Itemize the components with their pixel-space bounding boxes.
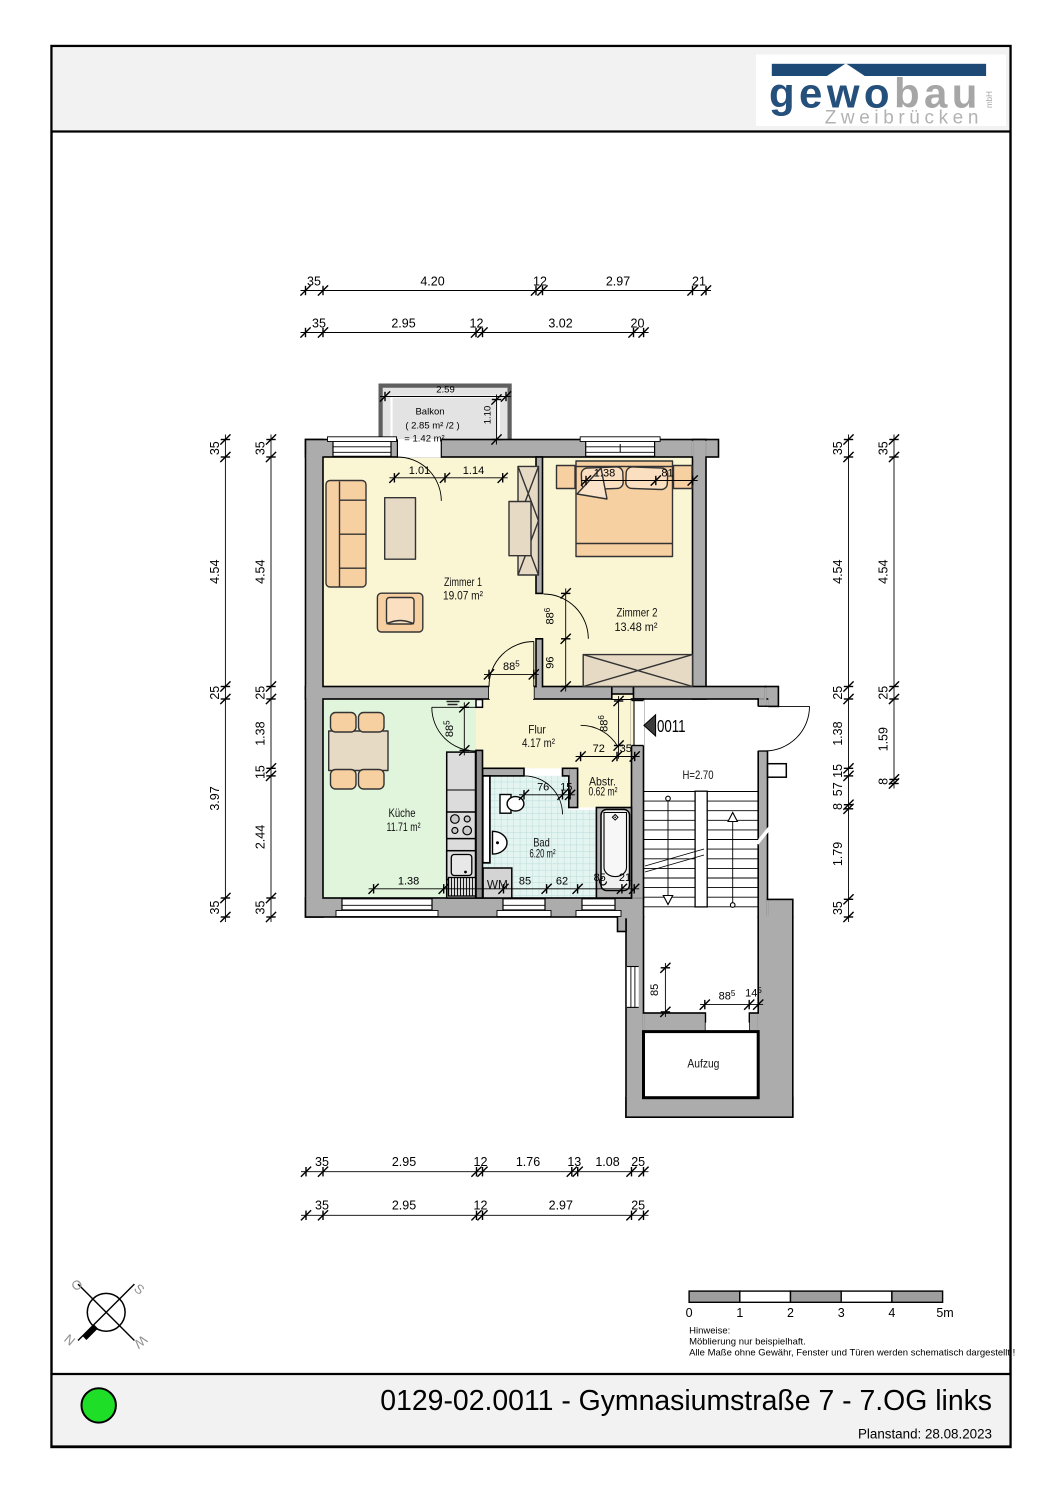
svg-text:12: 12	[533, 275, 547, 289]
svg-text:1: 1	[736, 1306, 743, 1320]
svg-text:25: 25	[831, 686, 845, 700]
svg-text:13: 13	[567, 1155, 581, 1169]
svg-text:35: 35	[208, 901, 222, 915]
svg-text:2.95: 2.95	[392, 1199, 416, 1213]
svg-text:85: 85	[594, 872, 606, 884]
svg-text:Aufzug: Aufzug	[687, 1056, 719, 1070]
svg-text:3: 3	[838, 1306, 845, 1320]
svg-text:25: 25	[631, 1199, 645, 1213]
svg-text:19.07 m²: 19.07 m²	[443, 589, 483, 603]
svg-text:Möblierung nur beispielhaft.: Möblierung nur beispielhaft.	[689, 1337, 806, 1348]
svg-text:85: 85	[519, 875, 531, 887]
svg-text:Zimmer 1: Zimmer 1	[444, 575, 482, 589]
svg-text:Hinweise:: Hinweise:	[689, 1326, 730, 1337]
svg-text:0011: 0011	[657, 717, 686, 736]
svg-text:( 2.85 m² /2 ): ( 2.85 m² /2 )	[405, 421, 459, 432]
svg-text:1.79: 1.79	[831, 842, 845, 866]
svg-text:3.02: 3.02	[548, 317, 572, 331]
svg-text:Alle Maße ohne Gewähr, Fenster: Alle Maße ohne Gewähr, Fenster und Türen…	[689, 1348, 1015, 1359]
svg-text:1.01: 1.01	[409, 465, 430, 477]
svg-text:1.14: 1.14	[463, 465, 484, 477]
svg-text:Balkon: Balkon	[415, 407, 444, 418]
svg-text:25: 25	[254, 686, 268, 700]
svg-text:3.97: 3.97	[208, 786, 222, 810]
svg-text:WM: WM	[487, 878, 508, 892]
svg-text:Planstand: 28.08.2023: Planstand: 28.08.2023	[858, 1427, 992, 1442]
svg-text:0129-02.0011 - Gymnasiumstraße: 0129-02.0011 - Gymnasiumstraße 7 - 7.OG …	[380, 1385, 992, 1417]
svg-text:1.08: 1.08	[595, 1155, 619, 1169]
svg-text:0: 0	[686, 1306, 693, 1320]
svg-text:35: 35	[307, 275, 321, 289]
svg-text:25: 25	[208, 686, 222, 700]
svg-text:35: 35	[831, 441, 845, 455]
svg-text:2.97: 2.97	[549, 1199, 573, 1213]
svg-text:1.38: 1.38	[831, 721, 845, 745]
svg-text:4.17 m²: 4.17 m²	[522, 736, 555, 750]
svg-text:96: 96	[545, 656, 557, 668]
svg-text:35: 35	[877, 441, 891, 455]
svg-text:1.38: 1.38	[254, 721, 268, 745]
svg-text:1.76: 1.76	[516, 1155, 540, 1169]
svg-text:1.38: 1.38	[594, 468, 615, 480]
svg-text:1.10: 1.10	[483, 406, 494, 425]
svg-text:6.20 m²: 6.20 m²	[530, 847, 556, 861]
svg-text:2.95: 2.95	[391, 317, 415, 331]
svg-text:25: 25	[877, 686, 891, 700]
svg-text:Zweibrücken: Zweibrücken	[825, 108, 983, 129]
svg-text:2.95: 2.95	[392, 1155, 416, 1169]
svg-text:62: 62	[556, 875, 568, 887]
svg-text:11.71 m²: 11.71 m²	[387, 820, 421, 834]
svg-text:21: 21	[692, 275, 706, 289]
svg-text:35: 35	[254, 441, 268, 455]
svg-text:35: 35	[208, 441, 222, 455]
svg-text:4.54: 4.54	[254, 559, 268, 583]
svg-text:12: 12	[470, 317, 484, 331]
svg-text:15: 15	[560, 781, 572, 793]
svg-text:8: 8	[877, 778, 891, 785]
svg-text:8: 8	[831, 803, 845, 810]
svg-text:2.97: 2.97	[606, 275, 630, 289]
svg-text:Küche: Küche	[389, 806, 416, 820]
svg-text:= 1.42 m²: = 1.42 m²	[404, 434, 444, 445]
svg-text:12: 12	[474, 1155, 488, 1169]
svg-text:0.62 m²: 0.62 m²	[589, 785, 618, 799]
svg-text:4.54: 4.54	[877, 559, 891, 583]
svg-text:15: 15	[254, 765, 268, 779]
svg-text:25: 25	[631, 1155, 645, 1169]
svg-text:4.54: 4.54	[208, 559, 222, 583]
svg-text:35: 35	[315, 1199, 329, 1213]
svg-text:35: 35	[312, 317, 326, 331]
svg-text:1.59: 1.59	[877, 727, 891, 751]
svg-text:Zimmer 2: Zimmer 2	[617, 606, 658, 620]
svg-text:35: 35	[620, 743, 632, 755]
svg-text:13.48 m²: 13.48 m²	[615, 620, 658, 634]
svg-text:H=2.70: H=2.70	[683, 768, 714, 782]
svg-text:21: 21	[619, 872, 631, 884]
svg-text:4.54: 4.54	[831, 559, 845, 583]
svg-text:2.44: 2.44	[254, 825, 268, 849]
svg-text:76: 76	[537, 781, 549, 793]
svg-text:57: 57	[831, 782, 845, 796]
svg-text:20: 20	[631, 317, 645, 331]
svg-text:1.38: 1.38	[398, 875, 419, 887]
svg-text:5m: 5m	[936, 1306, 953, 1320]
svg-text:4: 4	[888, 1306, 895, 1320]
svg-text:81: 81	[661, 468, 673, 480]
svg-text:35: 35	[315, 1155, 329, 1169]
svg-text:Flur: Flur	[528, 722, 546, 736]
svg-text:72: 72	[593, 743, 605, 755]
svg-text:2.59: 2.59	[436, 385, 455, 396]
svg-text:35: 35	[254, 901, 268, 915]
svg-text:12: 12	[474, 1199, 488, 1213]
svg-text:2: 2	[787, 1306, 794, 1320]
svg-text:mbH: mbH	[985, 91, 994, 108]
svg-text:35: 35	[831, 901, 845, 915]
svg-text:4.20: 4.20	[420, 275, 444, 289]
svg-text:15: 15	[831, 764, 845, 778]
svg-text:85: 85	[649, 984, 661, 996]
